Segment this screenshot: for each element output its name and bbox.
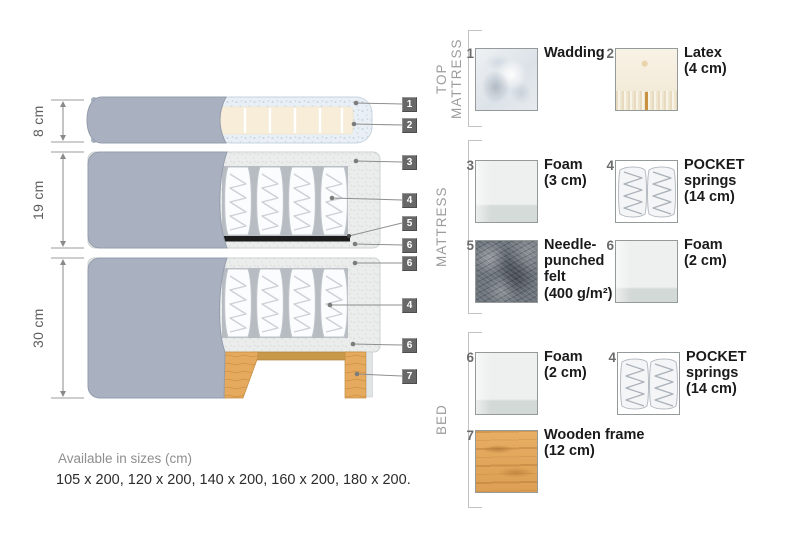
legend-section-title-top-mattress: TOP MATTRESS	[434, 30, 456, 127]
legend-item-size: (14 cm)	[686, 381, 766, 397]
legend-item-pocket-springs-bed: 4 POCKET springs (14 cm)	[603, 352, 766, 415]
callout-badge-6b: 6	[402, 256, 417, 271]
callout-badge-3: 3	[402, 155, 417, 170]
wood-swatch	[475, 430, 538, 493]
dimension-label-top-mattress: 8 cm	[30, 100, 50, 142]
legend-item-name: Foam	[684, 237, 764, 253]
callout-badge-4: 4	[402, 193, 417, 208]
legend-item-pocket-springs-mattress: 4 POCKET springs (14 cm)	[601, 160, 764, 223]
pocket-springs-drawing	[618, 353, 679, 414]
legend-item-name: POCKET springs	[686, 349, 766, 381]
legend-item-wooden-frame: 7 Wooden frame (12 cm)	[461, 430, 656, 493]
legend-item-number: 2	[601, 46, 614, 61]
pocket-springs-drawing	[616, 161, 677, 222]
sizes-list: 105 x 200, 120 x 200, 140 x 200, 160 x 2…	[56, 472, 411, 488]
legend-item-number: 4	[601, 158, 614, 173]
legend-item-foam-3cm: 3 Foam (3 cm)	[461, 160, 624, 223]
legend-item-number: 3	[461, 158, 474, 173]
callout-badge-6: 6	[402, 238, 417, 253]
foam-swatch	[615, 240, 678, 303]
dimension-label-mattress: 19 cm	[30, 152, 50, 248]
legend-item-number: 5	[461, 238, 474, 253]
mattress-infographic: 8 cm 19 cm 30 cm 1 2 3 4 5 6 6 4 6 7 TOP…	[0, 0, 800, 533]
legend-item-number: 7	[461, 428, 474, 443]
dimension-label-bed: 30 cm	[30, 258, 50, 398]
callout-badge-6c: 6	[402, 338, 417, 353]
mattress-graphic	[88, 152, 380, 248]
legend-item-foam-2cm-bed: 6 Foam (2 cm)	[461, 352, 624, 415]
legend-item-number: 6	[461, 350, 474, 365]
legend-item-foam-2cm-mattress: 6 Foam (2 cm)	[601, 240, 764, 303]
legend-item-size: (12 cm)	[544, 443, 656, 459]
top-mattress-graphic	[87, 97, 372, 143]
foam-swatch	[475, 160, 538, 223]
callout-badge-5: 5	[402, 216, 417, 231]
legend-item-name: POCKET springs	[684, 157, 764, 189]
legend-item-number: 4	[603, 350, 616, 365]
legend-section-title-mattress: MATTRESS	[434, 140, 456, 314]
legend-item-number: 6	[601, 238, 614, 253]
dimension-arrows	[51, 100, 84, 398]
sizes-title: Available in sizes (cm)	[58, 451, 192, 466]
legend-item-size: (2 cm)	[684, 253, 764, 269]
callout-badge-2: 2	[402, 118, 417, 133]
pocket-springs-swatch	[617, 352, 680, 415]
legend-item-name: Latex	[684, 45, 764, 61]
callout-badge-7: 7	[402, 369, 417, 384]
foam-swatch	[475, 352, 538, 415]
pocket-springs-swatch	[615, 160, 678, 223]
legend-section-title-bed: BED	[434, 332, 456, 508]
legend-item-latex: 2 Latex (4 cm)	[601, 48, 764, 111]
legend-item-number: 1	[461, 46, 474, 61]
callout-badge-1: 1	[402, 97, 417, 112]
felt-swatch	[475, 240, 538, 303]
callout-badge-4b: 4	[402, 298, 417, 313]
legend-item-wadding: 1 Wadding	[461, 48, 624, 111]
legend-item-size: (4 cm)	[684, 61, 764, 77]
legend-item-size: (14 cm)	[684, 189, 764, 205]
legend-item-name: Wooden frame	[544, 427, 656, 443]
legend-item-felt: 5 Needle-punched felt (400 g/m²)	[461, 240, 624, 303]
latex-swatch	[615, 48, 678, 111]
wadding-swatch	[475, 48, 538, 111]
bed-graphic	[88, 258, 380, 398]
